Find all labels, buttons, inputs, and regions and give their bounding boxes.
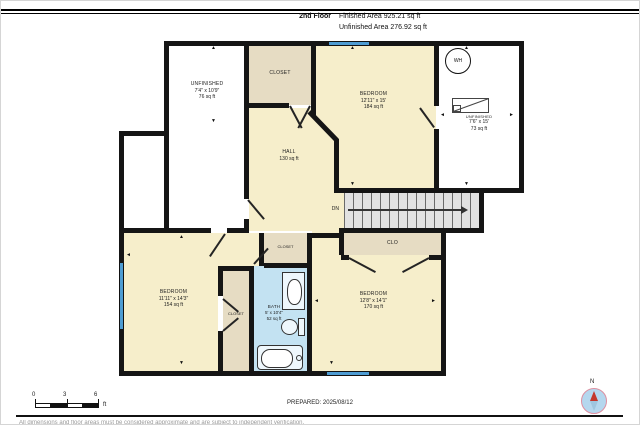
dim-arrow-icon: ► <box>509 113 514 118</box>
label-closet-top: CLOSET <box>247 70 313 77</box>
attic-hatch-box <box>453 105 461 112</box>
compass-needle-north <box>590 391 598 401</box>
label-closet-sw: CLOSET <box>221 311 251 316</box>
window <box>119 263 124 329</box>
wall <box>218 331 223 376</box>
label-bath: BATH 5' x 10'4" 52 sq ft <box>251 304 297 322</box>
wall <box>429 255 441 260</box>
wall <box>259 233 264 266</box>
wall <box>119 228 211 233</box>
wall <box>307 233 341 238</box>
scale-segment <box>35 403 51 408</box>
bottom-divider <box>16 415 623 417</box>
wall <box>119 131 169 136</box>
dim-arrow-icon: ▲ <box>179 235 184 240</box>
wall <box>441 228 446 376</box>
floorplan-page: 2nd Floor Finished Area 925.21 sq ft Unf… <box>0 0 640 425</box>
room-name: CLO <box>344 240 441 247</box>
scale-tick-6: 6 <box>94 392 97 398</box>
room-name: CLOSET <box>264 244 307 249</box>
room-area: 76 sq ft <box>171 94 243 101</box>
dim-arrow-icon: ▲ <box>350 46 355 51</box>
wall <box>339 188 484 193</box>
dim-arrow-icon: ◄ <box>440 113 445 118</box>
wall <box>479 193 484 233</box>
room-name: CLOSET <box>221 311 251 316</box>
room-name: CLOSET <box>247 70 313 77</box>
label-bedroom-se: BEDROOM 12'8" x 14'1" 170 sq ft <box>331 291 416 311</box>
wall <box>244 41 249 199</box>
dim-arrow-icon: ▼ <box>464 182 469 187</box>
label-hall: HALL 130 sq ft <box>259 149 319 162</box>
compass-north-label: N <box>590 379 594 385</box>
room-open-nook <box>124 136 169 228</box>
window <box>327 371 369 376</box>
attic-hatch-icon <box>452 98 489 113</box>
wall <box>434 41 439 106</box>
wall <box>119 371 446 376</box>
scale-segment <box>83 403 99 408</box>
scale-segment <box>67 403 83 408</box>
label-unfinished-e: UNFINISHED 7'6" x 15' 73 sq ft <box>441 114 517 132</box>
wall <box>164 41 169 231</box>
wall <box>479 188 524 193</box>
scale-segment <box>51 403 67 408</box>
prepared-date: PREPARED: 2025/08/12 <box>287 400 353 406</box>
stairs-direction-line <box>348 209 463 211</box>
wall <box>311 41 316 116</box>
dim-arrow-icon: ► <box>431 299 436 304</box>
dim-arrow-icon: ▼ <box>179 361 184 366</box>
scale-tick-0: 0 <box>32 392 35 398</box>
stairs-arrow-icon <box>461 206 468 214</box>
scale-tick-3: 3 <box>63 392 66 398</box>
wall <box>244 103 289 108</box>
scale-unit: ft <box>103 402 106 408</box>
wall <box>119 131 124 376</box>
stairs-dn-text: DN <box>319 206 339 213</box>
wall <box>339 228 484 233</box>
unfinished-area-text: Unfinished Area 276.92 sq ft <box>339 24 427 32</box>
wall <box>519 41 524 193</box>
bathtub-icon <box>257 345 303 370</box>
compass-icon <box>581 388 607 414</box>
label-bedroom-ne: BEDROOM 12'11" x 15' 184 sq ft <box>331 91 416 111</box>
wall <box>307 233 312 376</box>
finished-area-text: Finished Area 925.21 sq ft <box>339 13 420 21</box>
wall <box>264 263 307 268</box>
window <box>329 41 369 46</box>
faucet-icon <box>296 355 302 361</box>
water-heater-icon: WH <box>445 48 471 74</box>
scale-bar <box>35 403 99 408</box>
wall <box>434 129 439 193</box>
label-unfinished-nw: UNFINISHED 7'4" x 10'9" 76 sq ft <box>171 81 243 101</box>
label-closet-stairs: CLO <box>344 240 441 247</box>
water-heater-label: WH <box>454 58 462 64</box>
room-area: 184 sq ft <box>331 104 416 111</box>
room-area: 52 sq ft <box>251 316 297 322</box>
dim-arrow-icon: ▼ <box>211 119 216 124</box>
label-stairs-dn: DN <box>319 206 339 213</box>
dim-arrow-icon: ▼ <box>350 182 355 187</box>
room-unfinished-nw <box>169 44 244 231</box>
dim-arrow-icon: ▼ <box>329 361 334 366</box>
room-area: 130 sq ft <box>259 156 319 163</box>
room-area: 73 sq ft <box>441 126 517 133</box>
disclaimer-text: All dimensions and floor areas must be c… <box>19 420 623 425</box>
room-area: 154 sq ft <box>131 302 216 309</box>
dim-arrow-icon: ▲ <box>211 46 216 51</box>
floor-label: 2nd Floor <box>231 13 331 21</box>
dim-arrow-icon: ◄ <box>126 253 131 258</box>
label-closet-mid: CLOSET <box>264 244 307 249</box>
sink-icon <box>287 279 302 305</box>
room-area: 170 sq ft <box>331 304 416 311</box>
room-closet-sw <box>223 271 249 376</box>
toilet-tank-icon <box>298 318 305 336</box>
dim-arrow-icon: ◄ <box>314 299 319 304</box>
bathtub-basin <box>261 349 293 368</box>
wall <box>334 139 339 193</box>
wall <box>227 228 249 233</box>
dim-arrow-icon: ▲ <box>464 46 469 51</box>
label-bedroom-sw: BEDROOM 11'11" x 14'3" 154 sq ft <box>131 289 216 309</box>
compass-needle-south <box>590 401 598 411</box>
